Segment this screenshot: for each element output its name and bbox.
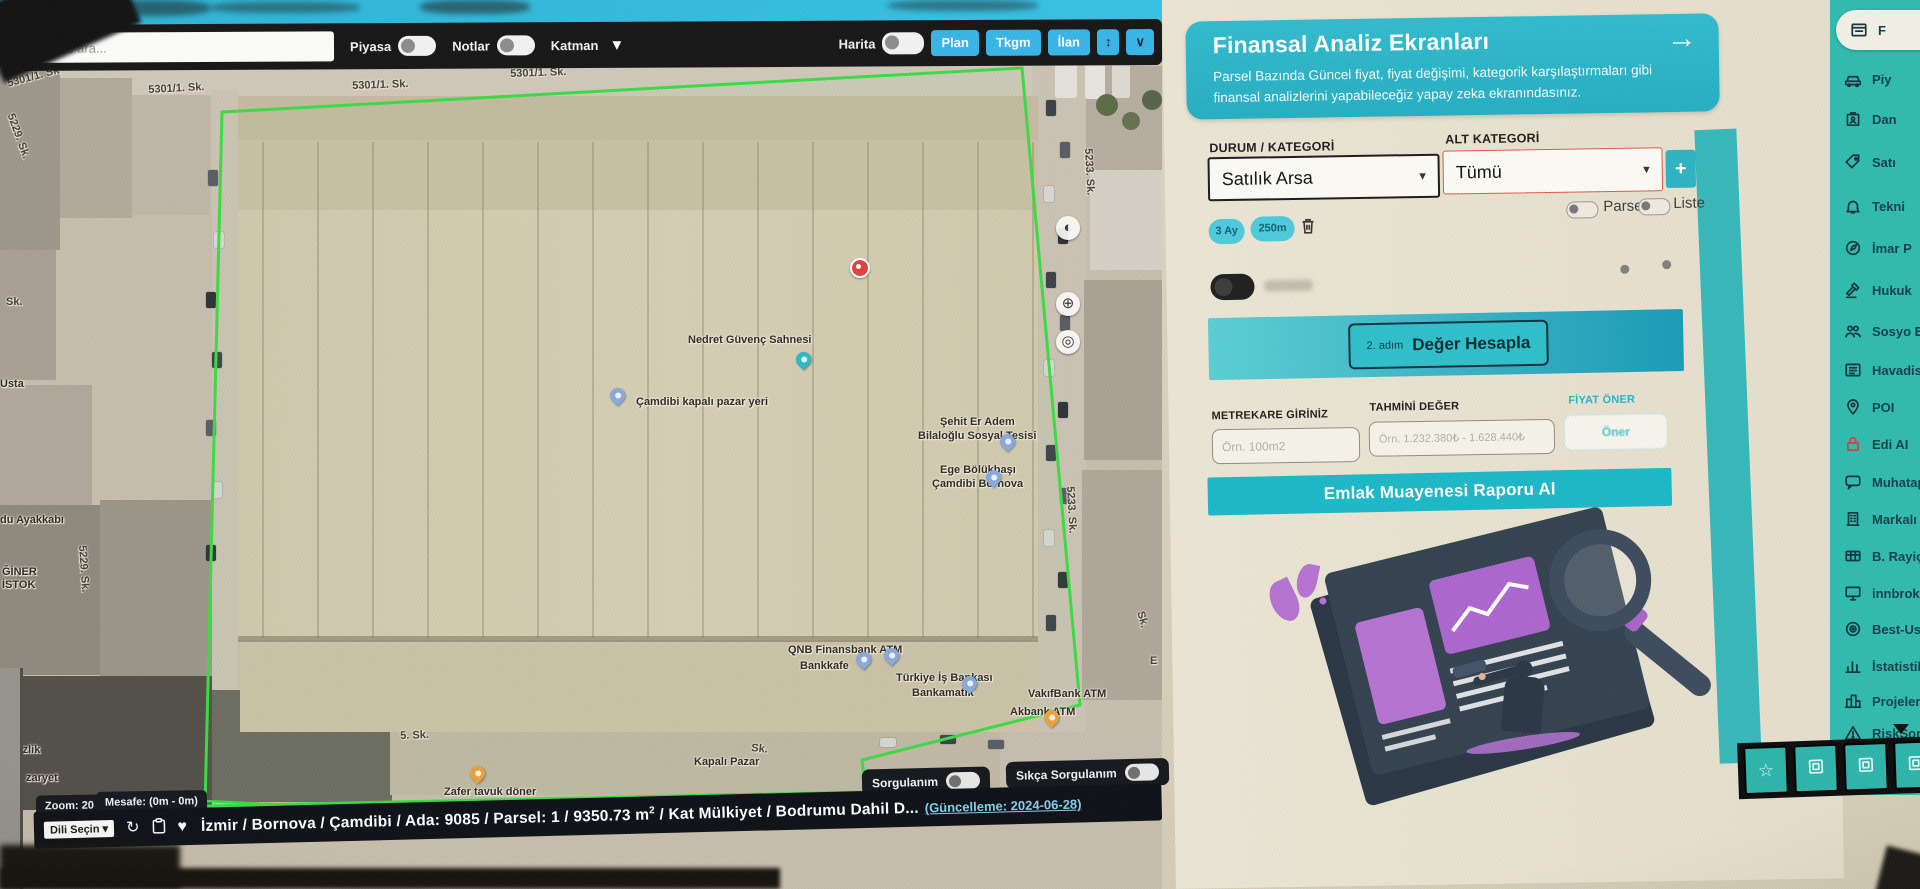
caret-down-icon: ▾ — [102, 823, 108, 835]
add-filter-button[interactable]: + — [1665, 150, 1696, 188]
target-icon — [1844, 620, 1862, 638]
parsel-toggle[interactable] — [1566, 201, 1598, 219]
frame-icon — [1807, 757, 1826, 781]
panel-edge-strip — [1694, 129, 1761, 764]
street-label: Sk. — [6, 296, 23, 308]
poi-label: Zafer tavuk döner — [444, 786, 536, 798]
star-icon-button[interactable]: ☆ — [1743, 746, 1789, 796]
poi-label: Çamdibi kapalı pazar yeri — [636, 396, 768, 408]
person-illustration — [1501, 675, 1546, 734]
faded-text — [1264, 280, 1312, 292]
panel-header-card: Finansal Analiz Ekranları Parsel Bazında… — [1185, 13, 1719, 119]
sidebar-item-label: Markalı P. — [1872, 512, 1920, 527]
photo-smudge — [210, 2, 360, 13]
katman-label: Katman — [551, 37, 599, 52]
poi-label: Bilaloğlu Sosyal Tesisi — [918, 430, 1036, 442]
red-map-pin[interactable] — [850, 258, 870, 278]
caret-down-icon: ▾ — [1643, 161, 1650, 177]
katman-dropdown-icon[interactable]: ▼ — [609, 36, 624, 53]
poi-label: ĞİNER — [2, 566, 37, 578]
page-description: Parsel Bazında Güncel fiyat, fiyat değiş… — [1213, 60, 1694, 109]
tahmini-deger-label: TAHMİNİ DEĞER — [1369, 400, 1459, 413]
layer-buttons: PlanTkgmİlan — [924, 29, 1090, 56]
right-sidebar: FPiyDanSatıTekniİmar PHukukSosyo EHavadi… — [1830, 0, 1920, 795]
poi-label: Bankkafe — [800, 660, 849, 672]
metrekare-label: METREKARE GİRİNİZ — [1211, 408, 1328, 422]
photo-smudge — [80, 0, 210, 16]
hand-illustration — [1479, 673, 1486, 680]
street-label: E — [1150, 655, 1157, 667]
step-label: Değer Hesapla — [1412, 333, 1530, 355]
chip-3-ay[interactable]: 3 Ay — [1208, 219, 1244, 245]
sidebar-item-label: Havadis — [1872, 363, 1920, 378]
lock-icon — [1844, 435, 1862, 453]
sidebar-item-markalı-p-[interactable]: Markalı P. — [1830, 502, 1920, 536]
sidebar-item-label: innbroker — [1872, 586, 1920, 601]
chip-250m[interactable]: 250m — [1250, 216, 1294, 242]
update-date-link[interactable]: (Güncelleme: 2024-06-28) — [925, 796, 1082, 815]
screen: 5301/1. Sk5301/1. Sk.5301/1. Sk.5301/1. … — [0, 0, 1920, 889]
building-icon — [1844, 510, 1862, 528]
sidebar-item-i-mar-p[interactable]: İmar P — [1830, 231, 1920, 265]
page-title: Finansal Analiz Ekranları — [1213, 28, 1490, 59]
bar-chart-icon — [1844, 657, 1862, 675]
map-canvas[interactable]: 5301/1. Sk5301/1. Sk.5301/1. Sk.5301/1. … — [0, 0, 1162, 889]
sorgulanim-label: Sorgulanım — [872, 774, 938, 790]
swap-vertical-icon-button[interactable]: ↕ — [1097, 29, 1120, 55]
sidebar-item-label: Tekni — [1872, 199, 1905, 214]
car-icon — [1844, 70, 1862, 88]
chat-icon — [1844, 473, 1862, 491]
bell-icon — [1844, 197, 1862, 215]
map-toolbar: Piyasa Notlar Katman ▼ Harita PlanTkgmİl… — [10, 19, 1162, 71]
parcel-boundary — [0, 0, 1162, 830]
refresh-icon[interactable]: ↻ — [126, 820, 140, 836]
sidebar-item-hukuk[interactable]: Hukuk — [1830, 273, 1920, 307]
sidebar-footer-toolbar: ☆ — [1737, 737, 1920, 800]
poi-label: Nedret Güvenç Sahnesi — [688, 334, 812, 346]
grid-table-icon — [1844, 547, 1862, 565]
liste-toggle[interactable] — [1638, 198, 1670, 216]
poi-label: temizlik — [0, 744, 40, 756]
arrow-right-icon[interactable]: → — [1666, 22, 1697, 56]
frame-icon-button[interactable] — [1843, 742, 1889, 792]
sidebar-item-sosyo-e[interactable]: Sosyo E — [1830, 314, 1920, 348]
poi-label: VakıfBank ATM — [1028, 688, 1106, 700]
leaf-illustration — [1294, 562, 1320, 599]
sidebar-item-piy[interactable]: Piy — [1830, 62, 1920, 96]
sidebar-item-projeler[interactable]: Projeler — [1830, 684, 1920, 718]
sidebar-item-poi[interactable]: POI — [1830, 390, 1920, 424]
sidebar-item-label: Projeler — [1872, 694, 1920, 709]
street-label: 5233. Sk. — [1082, 148, 1096, 196]
faded-icon — [1620, 265, 1629, 274]
liste-label: Liste — [1673, 194, 1705, 211]
people-icon — [1844, 322, 1862, 340]
street-label: Sk. — [751, 742, 769, 756]
poi-label: Türkiye İş Bankası — [896, 672, 993, 684]
clipboard-icon[interactable] — [151, 817, 166, 837]
fiyat-oner-button[interactable]: Öner — [1564, 413, 1669, 451]
trash-icon[interactable] — [1300, 218, 1315, 235]
durum-kategori-label: DURUM / KATEGORİ — [1209, 139, 1334, 155]
poi-label: Kapalı Pazar — [694, 756, 759, 768]
favorite-heart-icon[interactable]: ♥ — [177, 819, 187, 835]
compass-control[interactable]: ◐ — [1056, 216, 1080, 240]
harita-toggle[interactable] — [882, 32, 924, 54]
poi-label: Çamdibi Bornova — [932, 478, 1023, 490]
sidebar-item-label: POI — [1872, 400, 1894, 415]
sidebar-item-label: Edi AI — [1872, 437, 1908, 452]
durum-kategori-select[interactable]: Satılık Arsa▾ — [1207, 154, 1440, 202]
notlar-label: Notlar — [452, 38, 490, 53]
notlar-toggle[interactable] — [497, 35, 535, 55]
sidebar-item-label: Muhatap — [1872, 475, 1920, 490]
step-bar: 2. adım Değer Hesapla — [1208, 309, 1684, 380]
language-select[interactable]: Dili Seçin ▾ — [44, 820, 115, 839]
caret-down-icon: ▾ — [1419, 168, 1426, 184]
zoom-in-control[interactable]: ⊕ — [1056, 292, 1080, 316]
id-badge-icon — [1844, 110, 1862, 128]
sidebar-item-label: Satı — [1872, 155, 1896, 170]
frame-icon-button[interactable] — [1793, 744, 1839, 794]
sidebar-item-innbroker[interactable]: innbroker — [1830, 576, 1920, 610]
locate-control[interactable]: ◎ — [1056, 330, 1080, 354]
sidebar-item-label: Best-Use — [1872, 622, 1920, 637]
alt-kategori-label: ALT KATEGORİ — [1445, 131, 1540, 146]
toolbar-button-1[interactable]: Tkgm — [986, 30, 1041, 56]
step-number: 2. adım — [1366, 339, 1403, 352]
search-input[interactable] — [18, 31, 334, 63]
city-icon — [1844, 692, 1862, 710]
photo-smudge — [888, 0, 1038, 11]
poi-label: du Ayakkabı — [0, 514, 64, 526]
sidebar-collapse-icon[interactable] — [1893, 724, 1909, 734]
fiyat-oner-label: FİYAT ÖNER — [1568, 394, 1635, 407]
dark-mode-toggle[interactable] — [1210, 274, 1254, 301]
emlak-raporu-button[interactable]: Emlak Muayenesi Raporu Al — [1207, 468, 1672, 516]
monitor-icon — [1844, 584, 1862, 602]
sikca-sorgulanim-label: Sıkça Sorgulanım — [1016, 766, 1117, 782]
piyasa-label: Piyasa — [350, 39, 391, 54]
sidebar-item-muhatap[interactable]: Muhatap — [1830, 465, 1920, 499]
poi-label: Ege Bölükbaşı — [940, 464, 1016, 476]
frame-icon — [1857, 755, 1876, 779]
poi-label: Usta — [0, 378, 24, 390]
sidebar-item-label: F — [1878, 23, 1886, 38]
sidebar-item-tekni[interactable]: Tekni — [1830, 189, 1920, 223]
toolbar-button-2[interactable]: İlan — [1048, 29, 1091, 55]
star-icon: ☆ — [1758, 760, 1775, 782]
sikca-sorgulanim-toggle[interactable] — [1124, 763, 1158, 781]
sidebar-item-label: Piy — [1872, 72, 1892, 87]
sidebar-item-label: İmar P — [1872, 241, 1912, 256]
sidebar-item-b-rayiçler[interactable]: B. Rayiçler — [1830, 539, 1920, 573]
photo-smudge — [420, 0, 530, 14]
sidebar-item-label: Sosyo E — [1872, 324, 1920, 339]
sorgulanim-toggle[interactable] — [946, 772, 980, 790]
faded-icon — [1662, 260, 1671, 269]
sidebar-item-havadis[interactable]: Havadis — [1830, 353, 1920, 387]
poi-label: Şehit Er Adem — [940, 416, 1015, 428]
poi-label: İSTOK — [2, 579, 35, 591]
tahmini-deger-input[interactable] — [1369, 419, 1556, 457]
sidebar-item-label: Dan — [1872, 112, 1897, 127]
sidebar-item-best-use[interactable]: Best-Use — [1830, 612, 1920, 646]
compass-icon — [1844, 239, 1862, 257]
toolbar-button-0[interactable]: Plan — [931, 30, 979, 56]
finance-card-icon — [1850, 21, 1868, 39]
street-label: 5301/1. Sk. — [352, 78, 409, 92]
news-icon — [1844, 361, 1862, 379]
bezel-corner — [1875, 845, 1920, 889]
sidebar-item-f[interactable]: F — [1836, 10, 1920, 50]
frame-icon-button[interactable] — [1893, 740, 1920, 790]
deger-hesapla-button[interactable]: 2. adım Değer Hesapla — [1348, 320, 1549, 370]
sidebar-item-label: İstatistik — [1872, 659, 1920, 674]
sidebar-item-label: B. Rayiçler — [1872, 549, 1920, 564]
map-pin-icon — [1844, 398, 1862, 416]
poi-label: zaryet — [26, 772, 58, 784]
piyasa-toggle[interactable] — [398, 36, 436, 56]
street-label: 5. Sk. — [400, 729, 429, 742]
sidebar-item-label: Hukuk — [1872, 283, 1912, 298]
street-label: 5233. Sk. — [1064, 486, 1078, 534]
gavel-icon — [1844, 281, 1862, 299]
sidebar-item-i-statistik[interactable]: İstatistik — [1830, 649, 1920, 683]
sidebar-item-satı[interactable]: Satı — [1830, 145, 1920, 179]
alt-kategori-select[interactable]: Tümü▾ — [1442, 147, 1663, 194]
frame-icon — [1907, 753, 1920, 777]
sidebar-item-dan[interactable]: Dan — [1830, 102, 1920, 136]
sidebar-item-edi-ai[interactable]: Edi AI — [1830, 427, 1920, 461]
chevron-down-icon-button[interactable]: ∨ — [1126, 29, 1154, 55]
harita-label: Harita — [839, 36, 876, 51]
dot-illustration — [1319, 597, 1326, 604]
metrekare-input[interactable] — [1212, 427, 1361, 464]
sale-tag-icon — [1844, 153, 1862, 171]
